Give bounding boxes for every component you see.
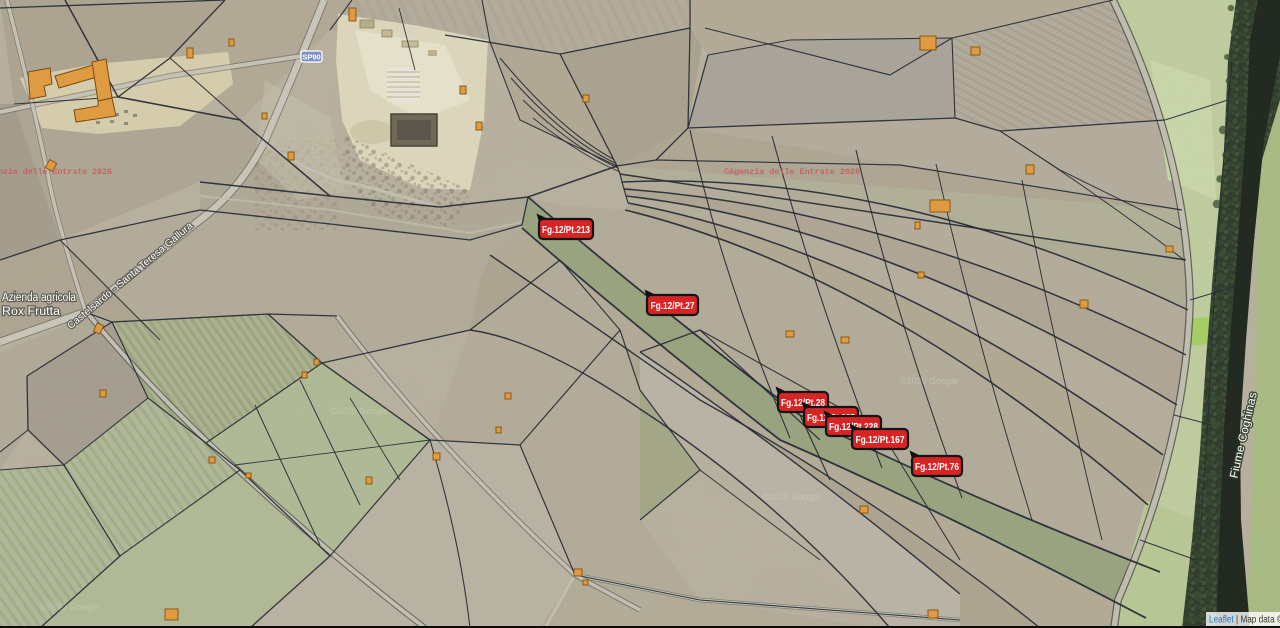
svg-text:©2020 Google: ©2020 Google [762, 492, 820, 502]
svg-text:Fg.12/Pt.213: Fg.12/Pt.213 [542, 224, 590, 236]
svg-text:Fg.12/Pt.27: Fg.12/Pt.27 [651, 300, 695, 312]
svg-text:©2020 Google: ©2020 Google [900, 376, 958, 386]
svg-text:Leaflet | Map data ©: Leaflet | Map data © [1209, 615, 1280, 626]
svg-text:©Agenzia delle Entrate 2026: ©Agenzia delle Entrate 2026 [724, 167, 860, 177]
svg-text:©2020 Google: ©2020 Google [40, 602, 98, 612]
svg-text:Rox Frutta: Rox Frutta [2, 306, 61, 318]
svg-text:Fg.12/Pt.167: Fg.12/Pt.167 [856, 434, 905, 446]
svg-text:©2020 Google: ©2020 Google [330, 406, 388, 416]
svg-text:SP90: SP90 [302, 53, 320, 62]
svg-text:Azienda agricola: Azienda agricola [2, 292, 77, 304]
svg-text:Fg.12/Pt.76: Fg.12/Pt.76 [915, 461, 959, 473]
svg-text:genzia delle Entrate 2026: genzia delle Entrate 2026 [0, 167, 112, 177]
